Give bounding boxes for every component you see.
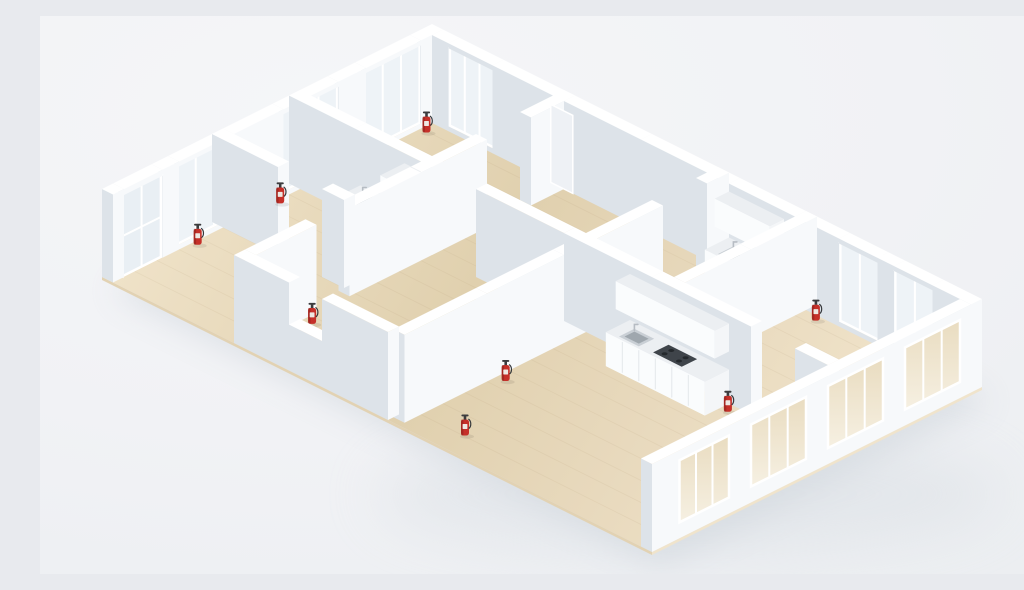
wall-segment bbox=[432, 35, 449, 131]
wall-segment bbox=[102, 189, 113, 283]
wall-segment bbox=[641, 459, 652, 553]
burner bbox=[662, 352, 668, 355]
wall-segment bbox=[163, 162, 180, 258]
floor-plan-render-canvas bbox=[40, 16, 1024, 574]
door-recess bbox=[551, 104, 573, 193]
wall-segment bbox=[520, 112, 531, 206]
burner bbox=[668, 349, 674, 352]
burner bbox=[676, 360, 682, 363]
wall-segment bbox=[388, 327, 399, 421]
wall-segment bbox=[322, 189, 344, 288]
wall-segment bbox=[113, 189, 124, 283]
scene-objects bbox=[102, 24, 1005, 566]
wall-segment bbox=[344, 195, 355, 289]
burner bbox=[683, 356, 689, 359]
wall-segment bbox=[971, 299, 982, 393]
floor-plan-3d-view: 3D isometric floor plan render — white d… bbox=[40, 16, 1024, 574]
